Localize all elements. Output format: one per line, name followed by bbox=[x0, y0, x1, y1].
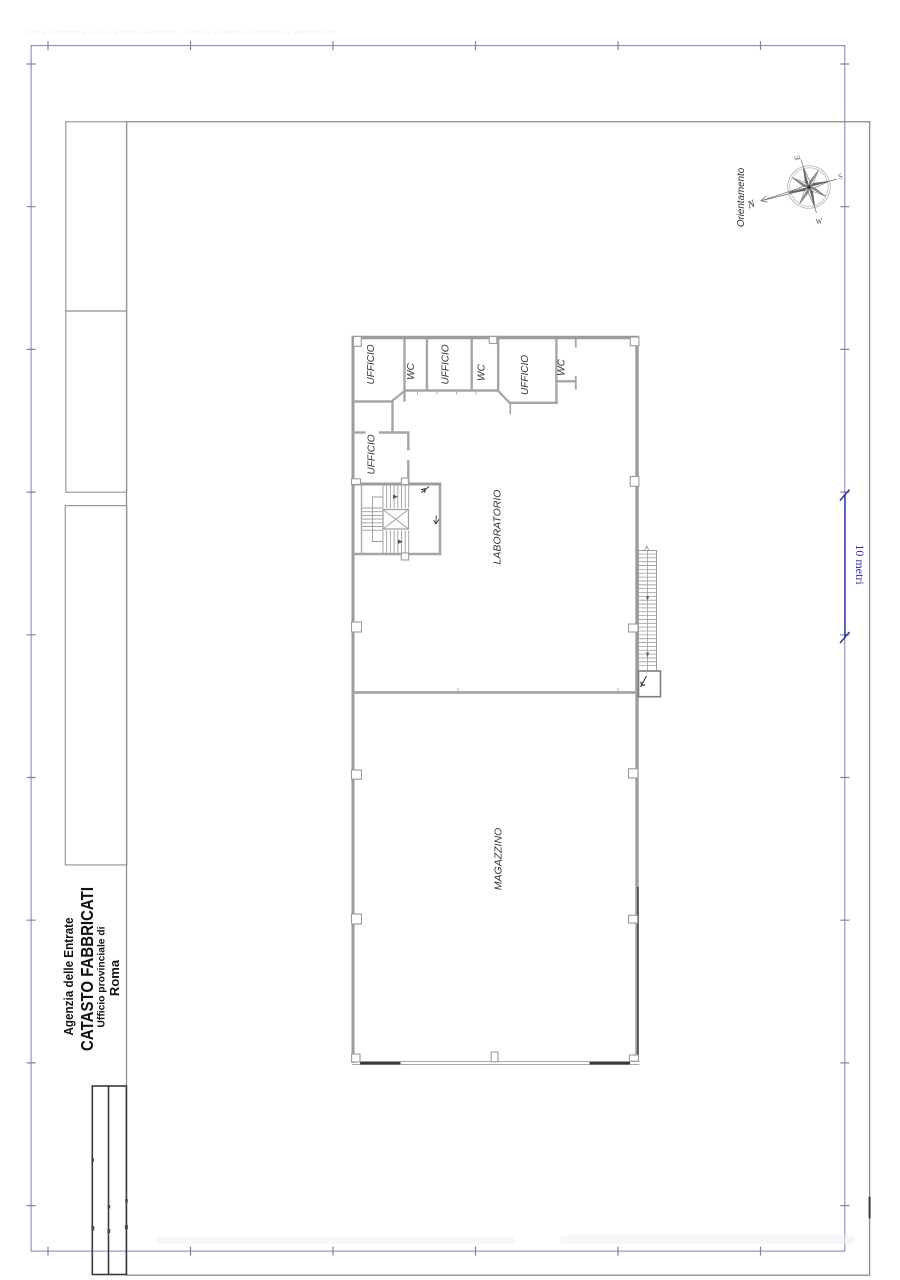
svg-text:E: E bbox=[792, 154, 802, 162]
svg-text:WC: WC bbox=[557, 358, 568, 375]
svg-text:10 metri: 10 metri bbox=[853, 544, 867, 585]
svg-text:Ufficio provinciale di: Ufficio provinciale di bbox=[96, 926, 108, 1027]
svg-text:LABORATORIO: LABORATORIO bbox=[492, 490, 504, 565]
svg-text:CATASTO FABBRICATI: CATASTO FABBRICATI bbox=[77, 887, 97, 1051]
svg-text:WC: WC bbox=[477, 363, 488, 380]
svg-text:Ultima planimetria in atti - C: Ultima planimetria in atti - Catasto Fab… bbox=[25, 30, 335, 37]
svg-text:Roma: Roma bbox=[107, 959, 122, 996]
svg-text:Agenzia delle Entrate: Agenzia delle Entrate bbox=[61, 918, 76, 1036]
svg-text:MAGAZZINO: MAGAZZINO bbox=[493, 828, 505, 890]
svg-text:S: S bbox=[836, 172, 843, 182]
svg-text:W: W bbox=[815, 216, 825, 226]
svg-text:UFFICIO: UFFICIO bbox=[520, 355, 531, 395]
svg-text:WC: WC bbox=[406, 362, 417, 379]
svg-text:Orientamento: Orientamento bbox=[736, 167, 747, 227]
svg-text:UFFICIO: UFFICIO bbox=[366, 344, 377, 384]
svg-text:UFFICIO: UFFICIO bbox=[441, 344, 452, 384]
svg-text:N: N bbox=[745, 198, 757, 211]
svg-text:UFFICIO: UFFICIO bbox=[367, 434, 378, 474]
